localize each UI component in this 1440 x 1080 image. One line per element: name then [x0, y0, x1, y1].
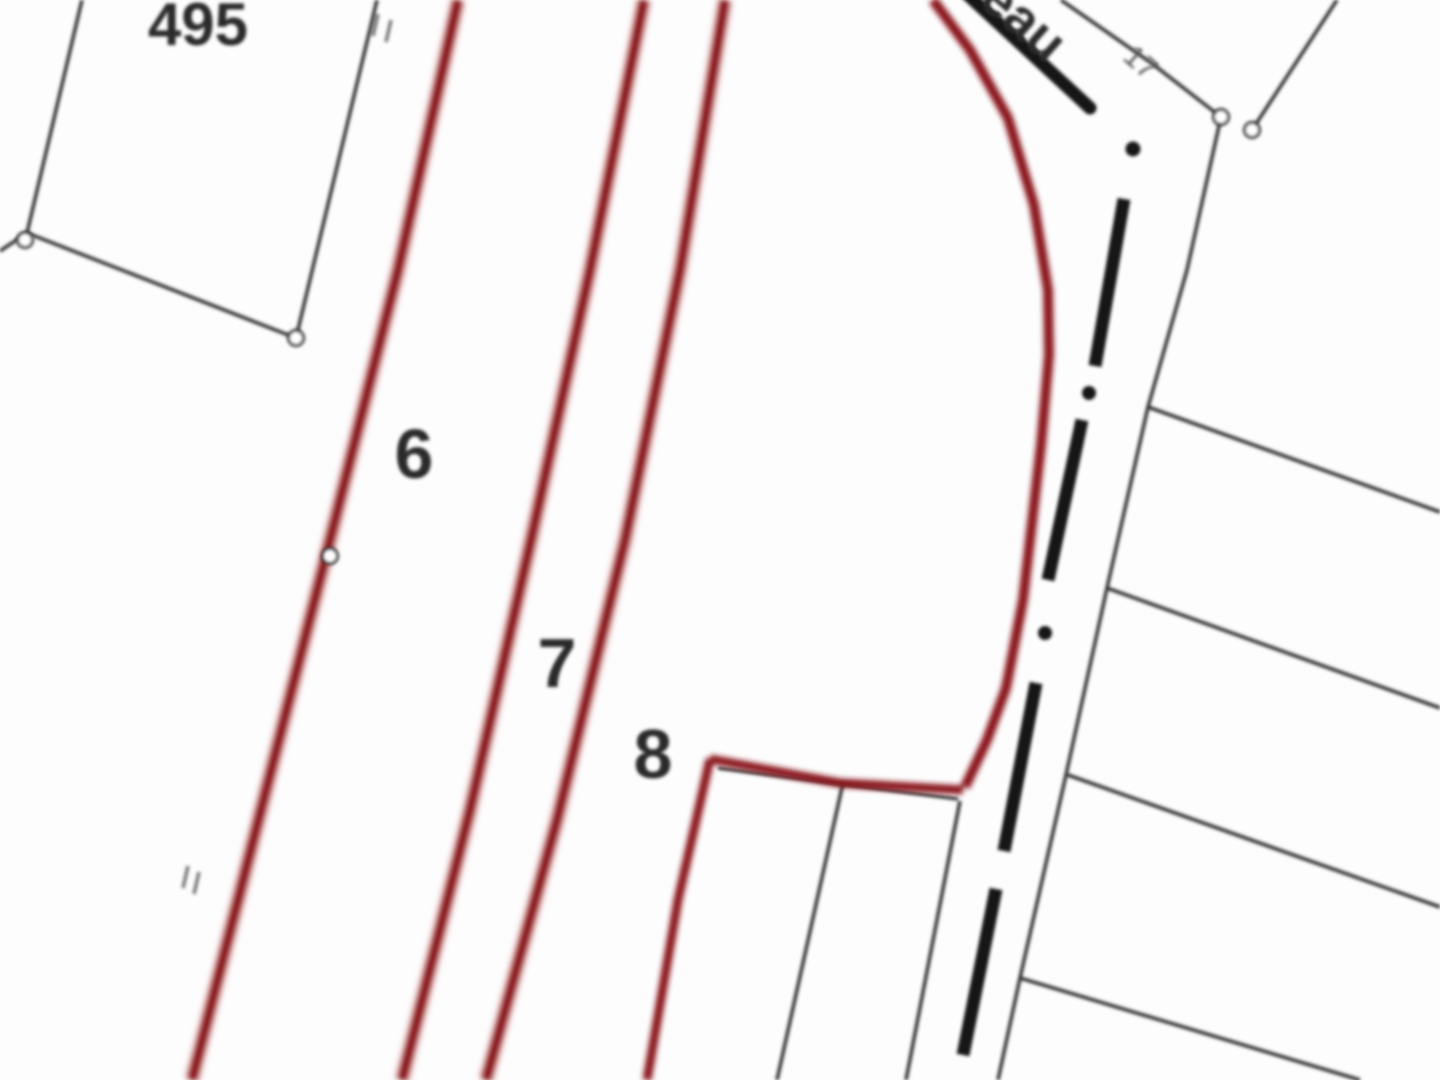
- svg-text:495: 495: [148, 0, 248, 58]
- svg-text:7: 7: [538, 624, 577, 702]
- svg-text:8: 8: [634, 715, 673, 793]
- svg-text:6: 6: [395, 415, 434, 493]
